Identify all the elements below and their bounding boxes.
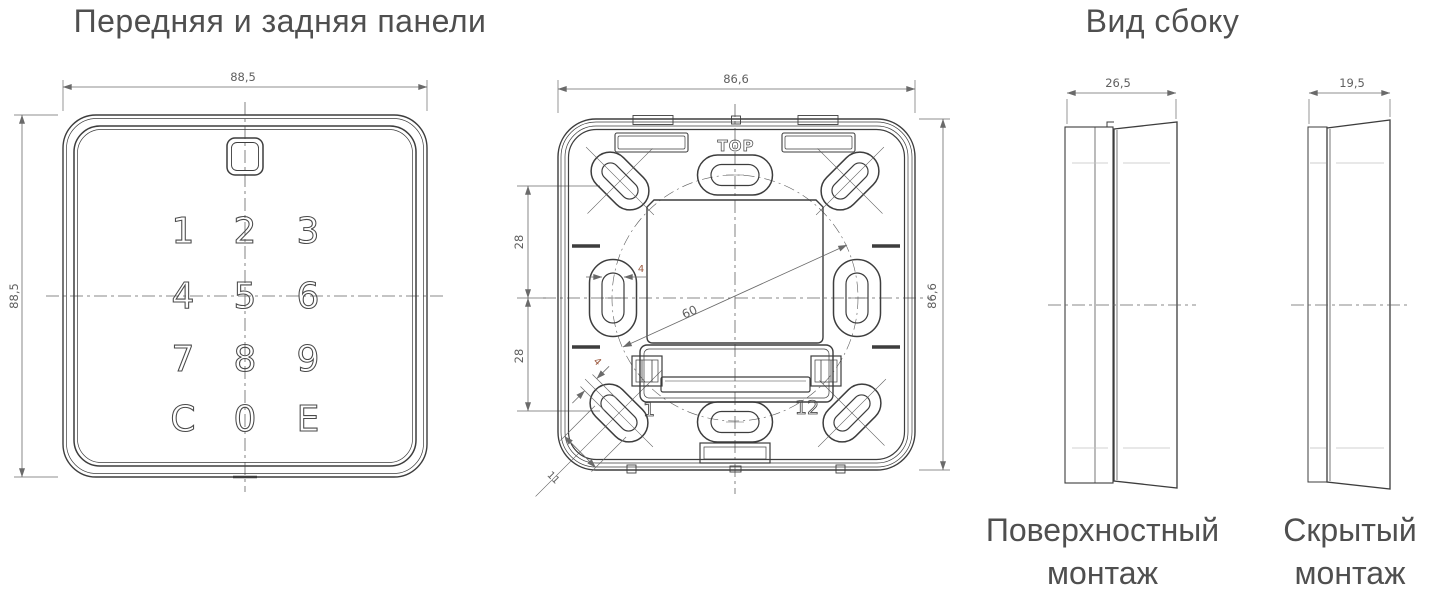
- rear-height-dimension: 86,6: [919, 119, 950, 470]
- keypad-key: 6: [297, 276, 320, 317]
- mounting-slot-bottom-left: [502, 337, 696, 531]
- top-center-notch: [732, 116, 741, 124]
- keypad-key: 8: [234, 339, 257, 380]
- surface-mount-caption-line2: монтаж: [975, 552, 1230, 595]
- mounting-slot-top-left: [554, 115, 687, 248]
- slot-length-dim-label: 11: [545, 470, 562, 487]
- keypad-key: 5: [234, 276, 257, 317]
- keypad-key: 9: [297, 339, 320, 380]
- surface-mount-caption-line1: Поверхностный: [975, 509, 1230, 552]
- slot-spacing-dimensions: 28 28: [512, 186, 600, 411]
- surface-depth-dimension: 26,5: [1067, 76, 1176, 124]
- flush-mount-body: [1308, 120, 1390, 489]
- mounting-circle-dim-label: 60: [680, 303, 700, 322]
- terminal-block: [632, 345, 841, 402]
- keypad-key: 0: [234, 399, 257, 440]
- front-width-dim-label: 88,5: [230, 70, 256, 84]
- flush-mount-caption-line1: Скрытый: [1255, 509, 1445, 552]
- surface-depth-dim-label: 26,5: [1105, 76, 1131, 90]
- drawing-sheet: Передняя и задняя панели Вид сбоку 88,5 …: [0, 0, 1446, 600]
- lower-spacing-dim-label: 28: [512, 349, 526, 364]
- bottom-edge-notch: [836, 465, 845, 473]
- slot-width-diag-dim-label: 4: [591, 356, 603, 368]
- flush-mount-caption-line2: монтаж: [1255, 552, 1445, 595]
- rear-panel-body: [558, 116, 915, 474]
- keypad-key: 3: [297, 211, 320, 252]
- flush-mount-caption: Скрытый монтаж: [1255, 509, 1445, 595]
- side-view-flush: 19,5: [1291, 76, 1408, 489]
- flush-depth-dim-label: 19,5: [1339, 76, 1365, 90]
- rear-height-dim-label: 86,6: [925, 283, 939, 309]
- keypad-key: C: [170, 399, 195, 440]
- rear-panel-drawing: 86,6 86,6 28 28: [502, 72, 950, 530]
- front-panel-profile: [1327, 120, 1390, 489]
- bottom-edge-notch: [627, 465, 636, 473]
- terminal-ear: [632, 356, 662, 386]
- terminal-number-last: 12: [795, 397, 819, 419]
- upper-spacing-dim-label: 28: [512, 235, 526, 250]
- top-edge-notch: [798, 116, 838, 125]
- slot-width-dim-label: 4: [638, 264, 644, 275]
- flush-depth-dimension: 19,5: [1309, 76, 1390, 124]
- terminal-ear: [811, 356, 841, 386]
- keypad-key: E: [297, 399, 320, 440]
- surface-mount-caption: Поверхностный монтаж: [975, 509, 1230, 595]
- rear-width-dimension: 86,6: [558, 72, 915, 113]
- terminal-number-first: 1: [643, 399, 655, 421]
- slot-width-dimension: 4: [586, 264, 646, 277]
- keypad-key: 4: [172, 276, 195, 317]
- front-height-dim-label: 88,5: [7, 283, 21, 309]
- mounting-slot-top-right: [784, 115, 917, 248]
- keypad-key: 7: [172, 339, 195, 380]
- keypad-key: 2: [234, 211, 257, 252]
- top-orientation-label: TOP: [718, 137, 755, 155]
- side-view-surface: 26,5: [1048, 76, 1196, 488]
- top-edge-notch: [633, 116, 673, 125]
- flush-flange: [1308, 127, 1327, 482]
- keypad-key: 1: [172, 211, 195, 252]
- rear-width-dim-label: 86,6: [723, 72, 749, 86]
- front-panel-drawing: 88,5 88,5: [7, 70, 444, 492]
